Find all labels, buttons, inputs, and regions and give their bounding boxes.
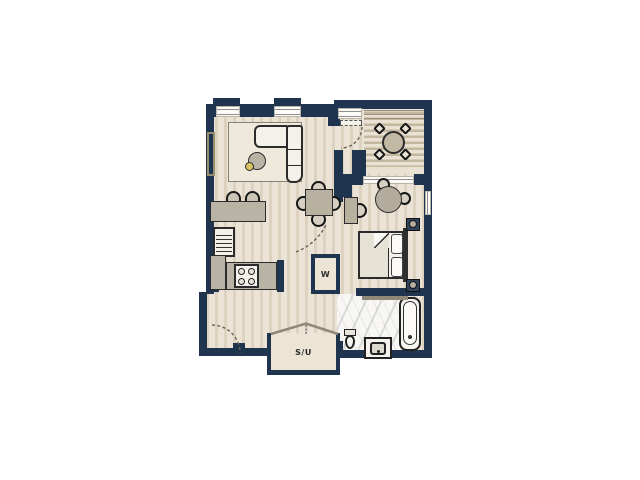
washer-label: W <box>311 254 340 294</box>
bedroom-door-swing <box>296 225 326 252</box>
balcony-door-swing <box>341 127 362 148</box>
storage-closet-doors <box>271 324 338 335</box>
entry-door-swing <box>212 325 240 353</box>
floor-plan: W S/U <box>0 0 640 480</box>
storage-utility-label: S/U <box>271 335 336 369</box>
door-arcs <box>0 0 640 480</box>
